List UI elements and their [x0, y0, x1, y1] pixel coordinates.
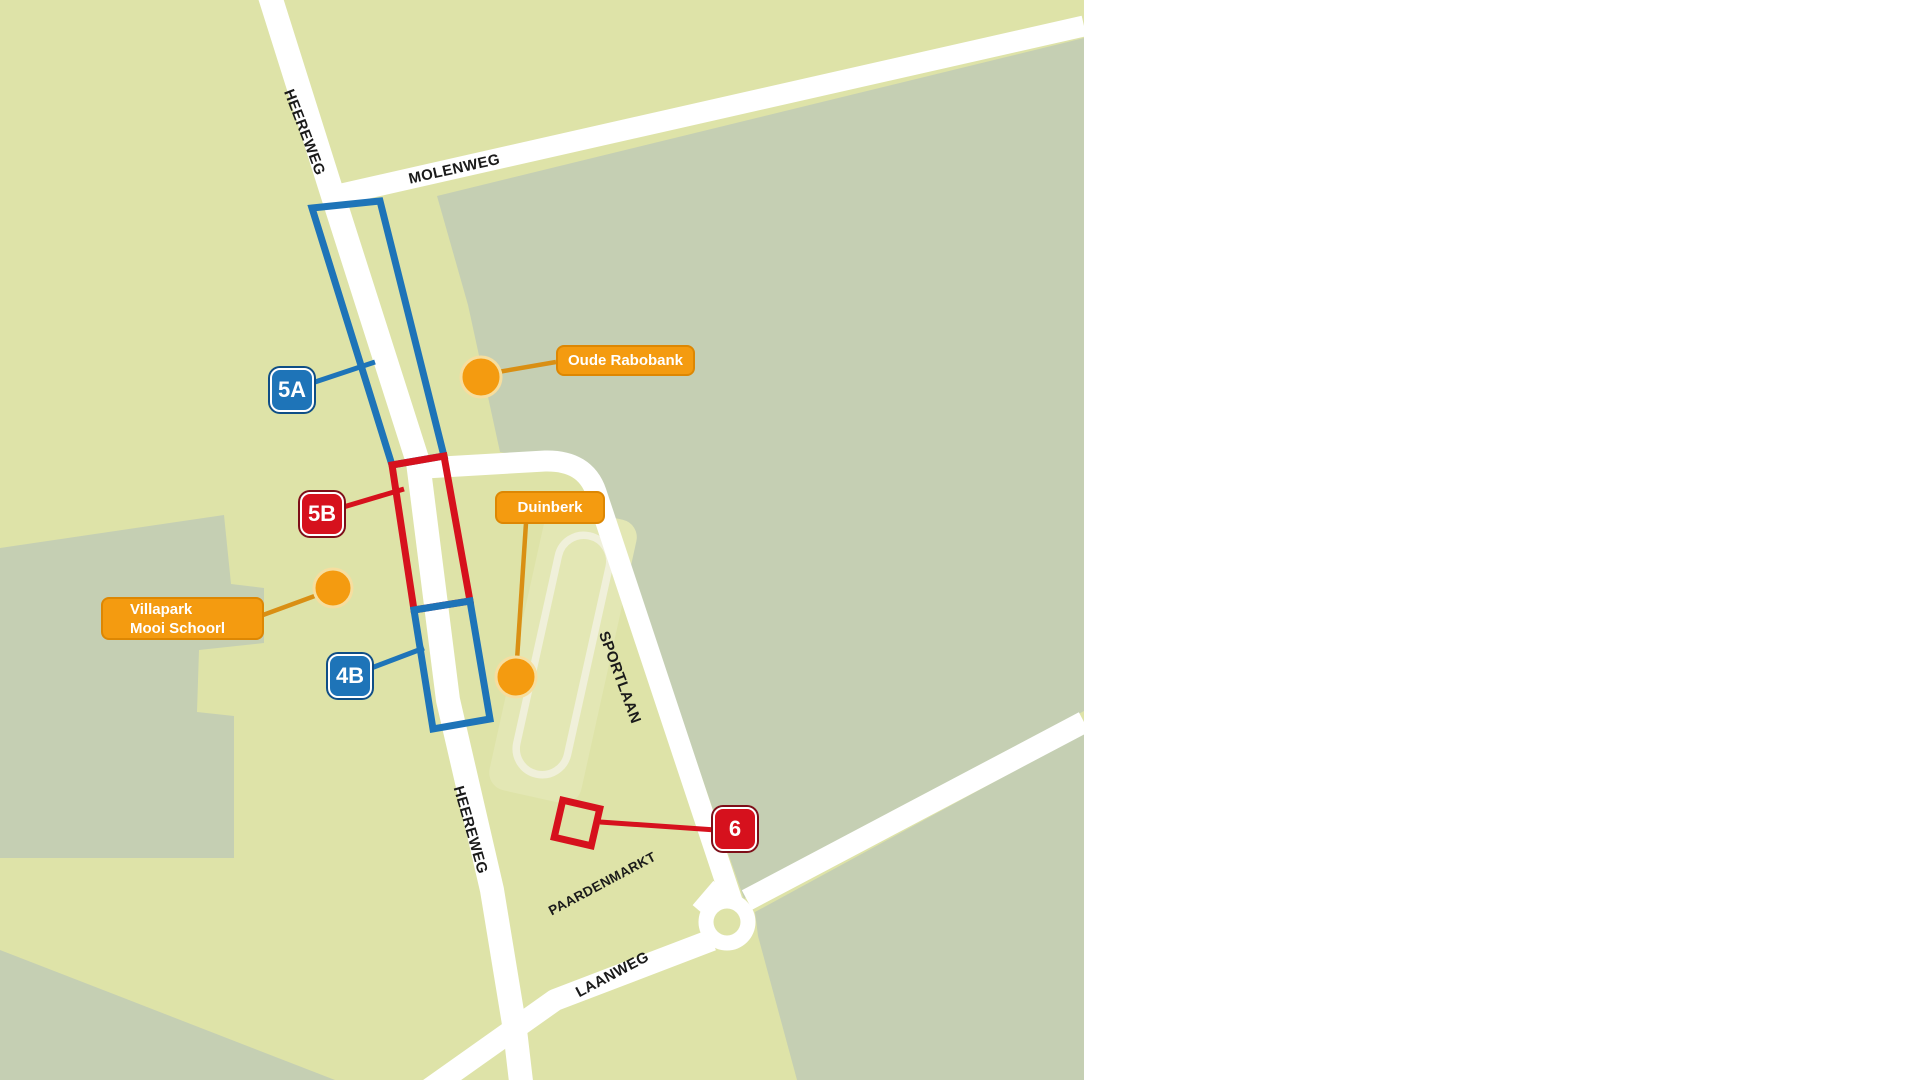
- poi-dot-oude-rabobank: [461, 357, 501, 397]
- site-badge-4b: 4B: [328, 654, 372, 698]
- poi-label-villapark: Villapark Mooi Schoorl: [101, 597, 264, 640]
- villapark-area-west: [0, 515, 264, 858]
- site-badge-5b: 5B: [300, 492, 344, 536]
- map-canvas: HEEREWEG MOLENWEG SPORTLAAN HEEREWEG PAA…: [0, 0, 1084, 1080]
- southwest-wedge-area: [0, 950, 335, 1080]
- site-badge-6: 6: [713, 807, 757, 851]
- map-artwork: [0, 0, 1084, 1080]
- screenshot-stage: HEEREWEG MOLENWEG SPORTLAAN HEEREWEG PAA…: [0, 0, 1920, 1080]
- road-laanweg: [428, 940, 712, 1080]
- poi-dot-duinberk: [496, 657, 536, 697]
- poi-dot-villapark: [314, 569, 352, 607]
- roundabout-island: [714, 909, 741, 936]
- poi-label-duinberk: Duinberk: [495, 491, 605, 524]
- site-outline-6: [554, 800, 600, 846]
- site-badge-5a: 5A: [270, 368, 314, 412]
- poi-label-villapark-line1: Villapark: [130, 600, 192, 619]
- poi-label-villapark-line2: Mooi Schoorl: [130, 619, 225, 638]
- poi-label-oude-rabobank: Oude Rabobank: [556, 345, 695, 376]
- connector-4b: [366, 648, 424, 670]
